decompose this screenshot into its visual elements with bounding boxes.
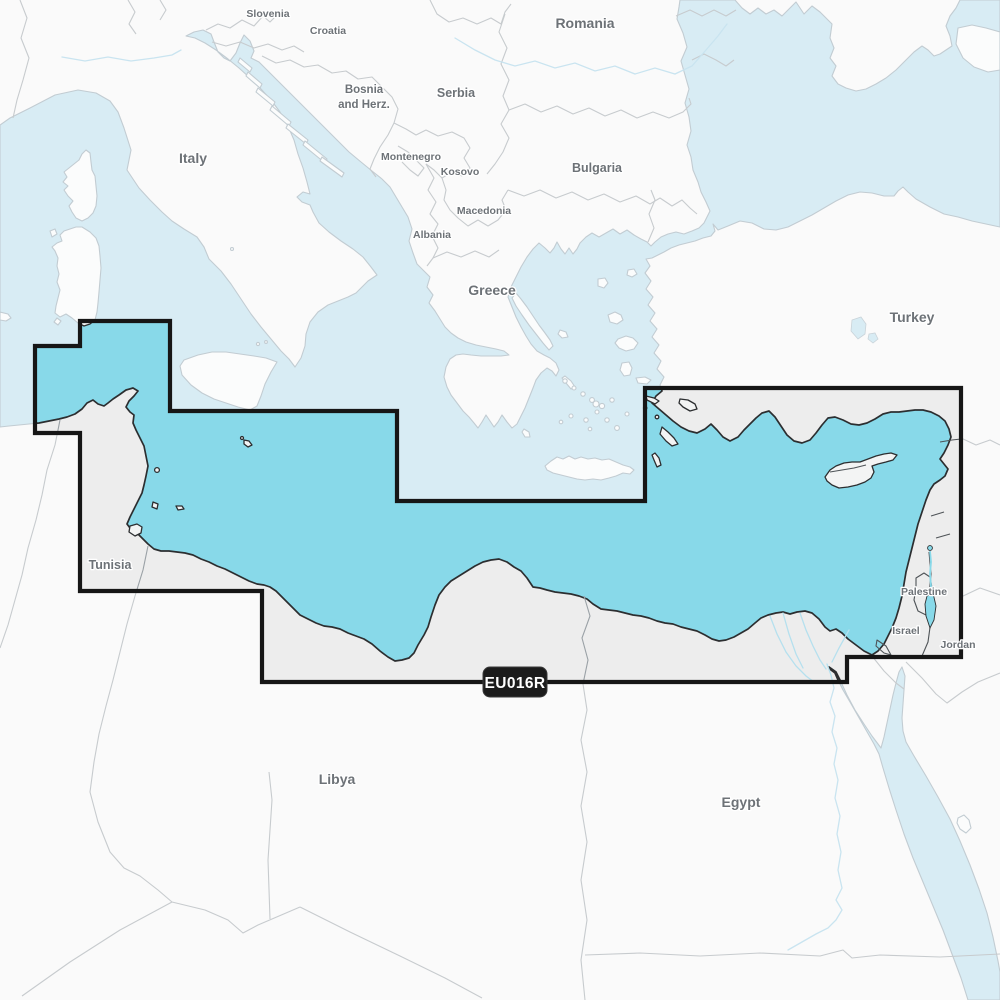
- small-island-dot: [563, 379, 567, 383]
- small-island-dot: [559, 420, 563, 424]
- country-label-israel: Israel: [892, 625, 920, 637]
- small-island-dot: [599, 403, 604, 408]
- island-shape: [152, 502, 158, 509]
- country-label-bosnia: Bosnia: [345, 84, 384, 96]
- small-island-dot: [595, 410, 599, 414]
- small-island-dot: [256, 342, 259, 345]
- country-label-egypt: Egypt: [722, 794, 761, 810]
- country-label-bulgaria: Bulgaria: [572, 161, 623, 175]
- small-island-dot: [584, 418, 588, 422]
- small-island-dot: [572, 386, 576, 390]
- island-shape: [176, 506, 184, 510]
- island-shape: [52, 227, 101, 326]
- country-label-italy: Italy: [179, 150, 207, 166]
- small-island-dot: [231, 248, 234, 251]
- small-island-dot: [588, 427, 592, 431]
- small-island-dot: [265, 341, 268, 344]
- small-island-dot: [605, 418, 609, 422]
- country-label-croatia: Croatia: [310, 25, 346, 37]
- small-island-dot: [155, 468, 160, 473]
- small-island-dot: [569, 414, 573, 418]
- country-label-greece: Greece: [468, 282, 516, 298]
- small-island-dot: [593, 401, 599, 407]
- inland-water: [928, 546, 933, 551]
- country-label-albania: Albania: [413, 229, 451, 241]
- small-island-dot: [615, 426, 620, 431]
- country-label-macedonia: Macedonia: [457, 205, 511, 217]
- region-code-text: EU016R: [485, 675, 546, 692]
- country-label-montenegro: Montenegro: [381, 151, 441, 163]
- map-canvas: SloveniaCroatiaBosniaand Herz.SerbiaMont…: [0, 0, 1000, 1000]
- country-label-slovenia: Slovenia: [246, 8, 289, 20]
- country-label-serbia: Serbia: [437, 86, 476, 100]
- country-label-jordan: Jordan: [940, 639, 975, 651]
- country-label-palestine: Palestine: [901, 586, 947, 598]
- country-label-tunisia: Tunisia: [89, 558, 133, 572]
- country-label-and-herz: and Herz.: [338, 99, 390, 111]
- region-code-badge[interactable]: EU016R: [483, 667, 547, 697]
- small-island-dot: [241, 437, 244, 440]
- small-island-dot: [581, 392, 585, 396]
- country-label-romania: Romania: [555, 15, 614, 31]
- country-label-libya: Libya: [319, 771, 356, 787]
- small-island-dot: [625, 412, 629, 416]
- small-island-dot: [610, 398, 614, 402]
- small-island-dot: [655, 415, 659, 419]
- country-label-kosovo: Kosovo: [441, 166, 480, 178]
- country-label-turkey: Turkey: [890, 309, 935, 325]
- chart-coverage-map: SloveniaCroatiaBosniaand Herz.SerbiaMont…: [0, 0, 1000, 1000]
